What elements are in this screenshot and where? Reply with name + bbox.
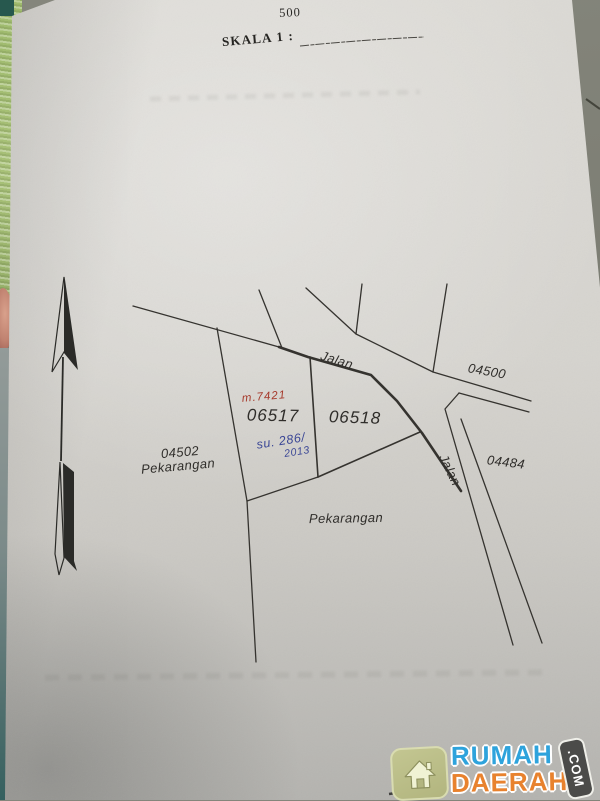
scale-denominator: 500 <box>279 5 301 21</box>
twig-on-background <box>586 99 600 109</box>
land-use-label-bottom: Pekarangan <box>309 510 383 526</box>
table-corner-shadow <box>0 0 14 16</box>
paper-sheet <box>0 0 600 800</box>
parcel-label-06517: 06517 <box>247 406 300 427</box>
parcel-label-06518: 06518 <box>329 407 382 429</box>
photo-of-survey-document: 500 SKALA 1 : Jalan 04500 Jalan 04484 06… <box>0 0 600 800</box>
